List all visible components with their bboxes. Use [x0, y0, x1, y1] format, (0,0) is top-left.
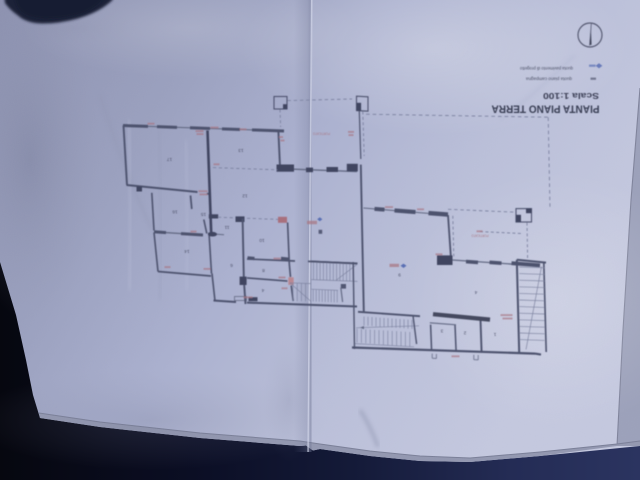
svg-text:2: 2: [463, 330, 466, 336]
svg-text:12: 12: [242, 193, 248, 199]
svg-text:quota pavimento di progetto: quota pavimento di progetto: [520, 66, 573, 71]
svg-text:17: 17: [167, 156, 173, 162]
svg-text:9: 9: [398, 272, 401, 278]
svg-text:1: 1: [493, 331, 496, 337]
svg-text:6: 6: [230, 262, 233, 268]
svg-text:8: 8: [262, 267, 265, 273]
svg-text:16: 16: [172, 209, 178, 215]
svg-text:quota piano campagna: quota piano campagna: [526, 76, 572, 81]
svg-text:4: 4: [261, 287, 264, 293]
svg-text:PORTICATO: PORTICATO: [471, 234, 488, 238]
svg-text:3: 3: [440, 328, 443, 334]
svg-text:Scala 1:100: Scala 1:100: [543, 91, 599, 101]
svg-text:14: 14: [184, 248, 190, 254]
svg-text:PORTICATO: PORTICATO: [313, 132, 330, 136]
svg-text:11: 11: [224, 224, 229, 230]
svg-text:10: 10: [259, 237, 265, 243]
svg-text:4: 4: [474, 289, 477, 295]
svg-text:15: 15: [201, 211, 207, 217]
svg-text:13: 13: [238, 147, 244, 153]
svg-text:PIANTA PIANO TERRA: PIANTA PIANO TERRA: [491, 103, 599, 115]
